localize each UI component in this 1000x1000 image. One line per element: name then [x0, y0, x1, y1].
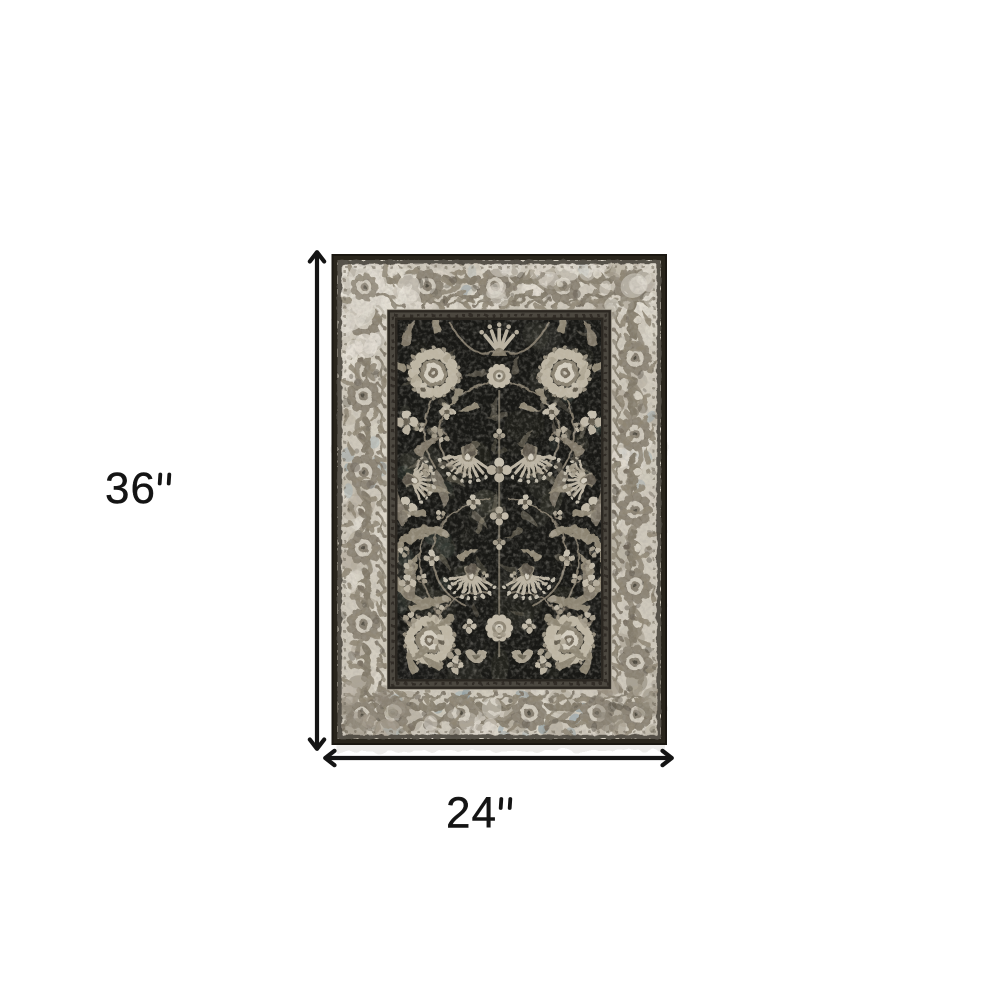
svg-text:36: 36 [105, 464, 156, 513]
svg-text:24: 24 [446, 789, 497, 838]
